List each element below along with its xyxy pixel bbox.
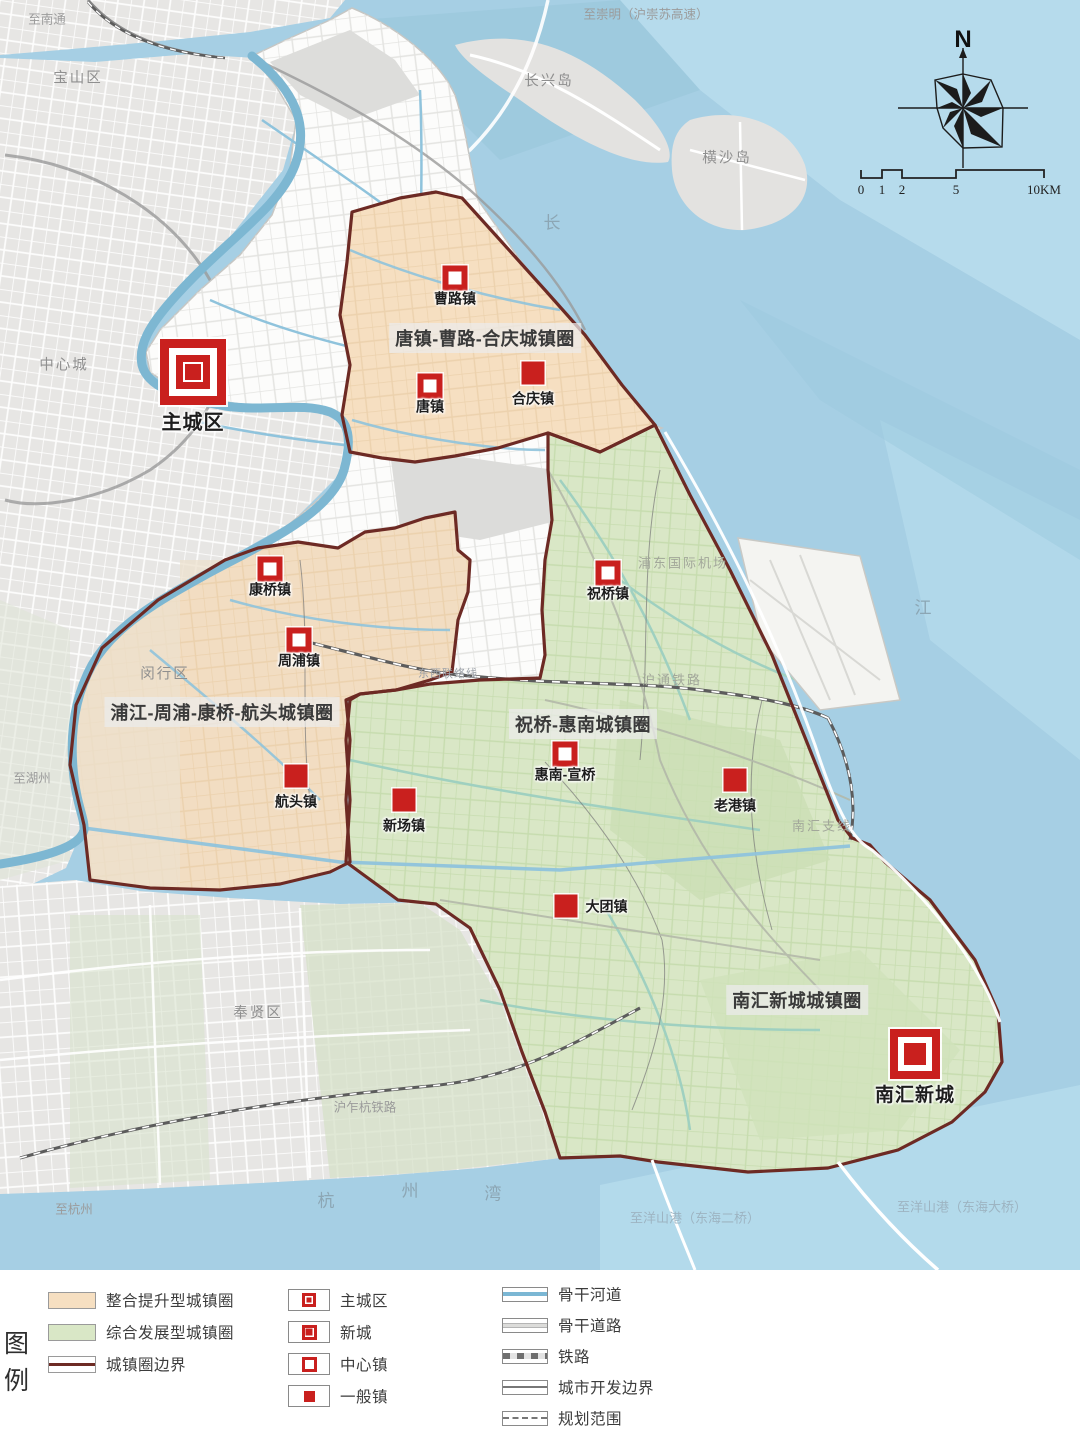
legend-item-comprehensive-circle: 综合发展型城镇圈 [48,1322,234,1342]
legend-item-integrated-circle: 整合提升型城镇圈 [48,1290,234,1310]
legend-label: 城镇圈边界 [106,1353,186,1375]
legend-label: 骨干河道 [558,1283,622,1305]
trunk-road-line-icon [502,1318,548,1333]
legend-item-main-city: 主城区 [288,1290,388,1310]
scale-tick: 0 [858,182,865,198]
scale-bar: 0 1 2 5 10KM [856,166,1056,200]
legend-panel: 图 例 整合提升型城镇圈 综合发展型城镇圈 城镇圈边界 主城区 [0,1270,1080,1449]
scale-tick: 10KM [1027,182,1061,198]
compass-north-label: N [954,26,971,54]
dev-boundary-line-icon [502,1380,548,1395]
legend-zone-column: 整合提升型城镇圈 综合发展型城镇圈 城镇圈边界 [48,1290,234,1374]
legend-item-railway: 铁路 [502,1346,654,1366]
legend-item-dev-boundary: 城市开发边界 [502,1377,654,1397]
legend-label: 新城 [340,1321,372,1343]
legend-title: 图 例 [4,1332,29,1394]
new-city-marker-icon [288,1321,330,1343]
general-town-marker-icon [288,1385,330,1407]
legend-label: 一般镇 [340,1385,388,1407]
plan-range-line-icon [502,1411,548,1426]
trunk-river-line-icon [502,1287,548,1302]
legend-item-new-city: 新城 [288,1322,388,1342]
legend-label: 中心镇 [340,1353,388,1375]
legend-label: 骨干道路 [558,1314,622,1336]
legend-label: 整合提升型城镇圈 [106,1289,234,1311]
legend-item-trunk-river: 骨干河道 [502,1284,654,1304]
legend-title-char: 例 [4,1369,29,1394]
green-zone-swatch-icon [48,1324,96,1341]
scale-tick: 2 [899,182,906,198]
legend-label: 综合发展型城镇圈 [106,1321,234,1343]
legend-label: 铁路 [558,1345,590,1367]
main-city-marker-icon [288,1289,330,1311]
railway-line-icon [502,1349,548,1364]
legend-item-trunk-road: 骨干道路 [502,1315,654,1335]
legend-label: 主城区 [340,1289,388,1311]
orange-zone-swatch-icon [48,1292,96,1309]
legend-label: 城市开发边界 [558,1376,654,1398]
legend-item-general-town: 一般镇 [288,1386,388,1406]
legend-item-plan-range: 规划范围 [502,1408,654,1428]
legend-item-circle-boundary: 城镇圈边界 [48,1354,234,1374]
center-town-marker-icon [288,1353,330,1375]
legend-title-char: 图 [4,1332,29,1357]
legend-place-column: 主城区 新城 中心镇 一般镇 [288,1290,388,1406]
planning-map-page: N 0 1 2 5 10KM 至南通宝山区至崇明（沪崇苏高速）长兴岛横沙岛中心城… [0,0,1080,1449]
legend-item-center-town: 中心镇 [288,1354,388,1374]
scale-tick: 1 [879,182,886,198]
map-canvas: N 0 1 2 5 10KM 至南通宝山区至崇明（沪崇苏高速）长兴岛横沙岛中心城… [0,0,1080,1270]
legend-line-column: 骨干河道 骨干道路 铁路 城市开发边界 规划范围 [502,1284,654,1428]
circle-boundary-line-icon [48,1356,96,1373]
scale-tick: 5 [953,182,960,198]
legend-label: 规划范围 [558,1407,622,1429]
scale-bar-art [856,166,1056,182]
